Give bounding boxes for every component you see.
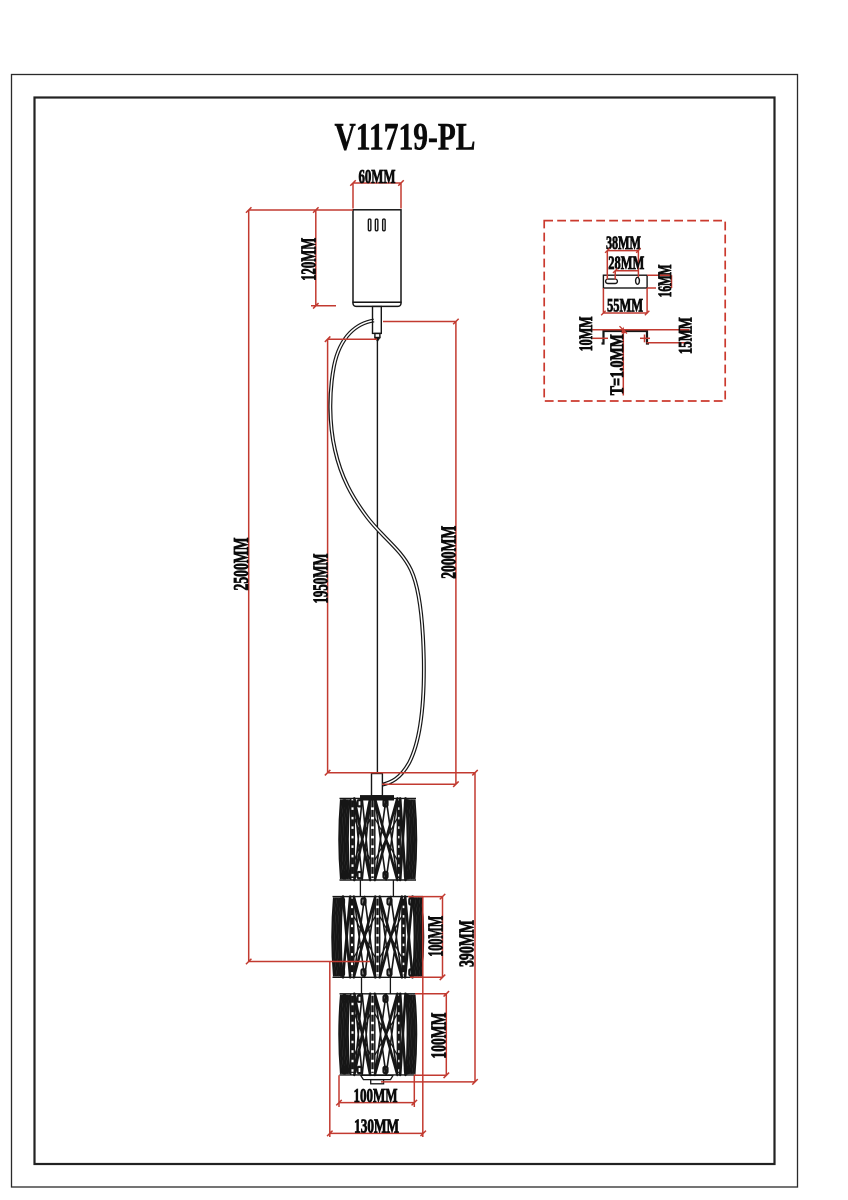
svg-text:100MM: 100MM [423, 916, 447, 957]
svg-text:2000MM: 2000MM [436, 526, 460, 579]
svg-text:1950MM: 1950MM [308, 553, 332, 603]
svg-text:120MM: 120MM [296, 238, 320, 281]
svg-text:16MM: 16MM [655, 264, 676, 297]
svg-text:60MM: 60MM [359, 166, 396, 188]
svg-text:55MM: 55MM [607, 296, 643, 316]
svg-text:V11719-PL: V11719-PL [335, 116, 476, 159]
svg-text:390MM: 390MM [454, 920, 478, 967]
svg-text:100MM: 100MM [426, 1012, 450, 1058]
svg-text:2500MM: 2500MM [229, 537, 253, 590]
svg-text:T=1.0MM: T=1.0MM [607, 334, 628, 395]
svg-text:15MM: 15MM [676, 317, 697, 354]
svg-text:10MM: 10MM [576, 316, 597, 351]
svg-text:130MM: 130MM [354, 1115, 399, 1137]
svg-text:100MM: 100MM [354, 1085, 398, 1107]
